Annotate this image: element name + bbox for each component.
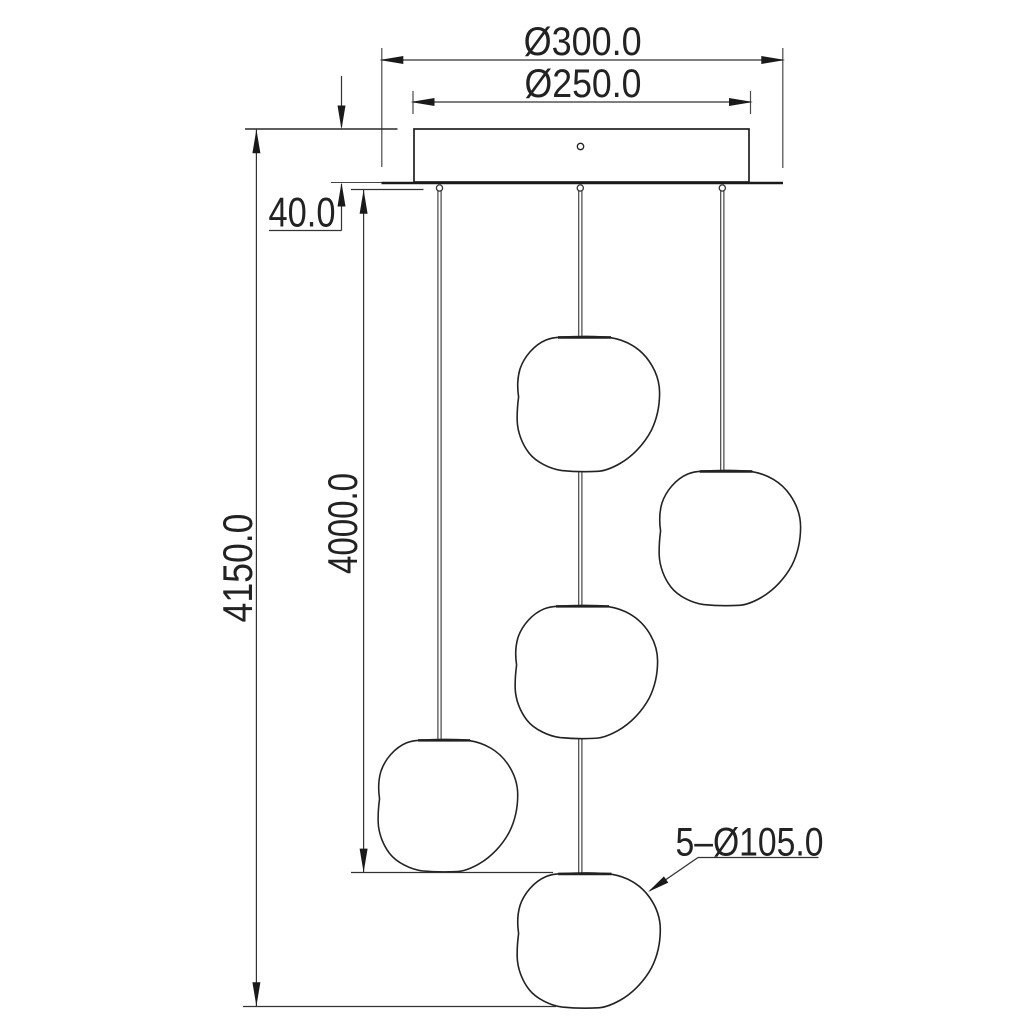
svg-text:4000.0: 4000.0 (319, 473, 366, 574)
svg-text:Ø250.0: Ø250.0 (525, 62, 642, 106)
svg-text:Ø300.0: Ø300.0 (524, 20, 642, 64)
svg-text:4150.0: 4150.0 (214, 514, 261, 623)
svg-text:40.0: 40.0 (269, 189, 336, 236)
